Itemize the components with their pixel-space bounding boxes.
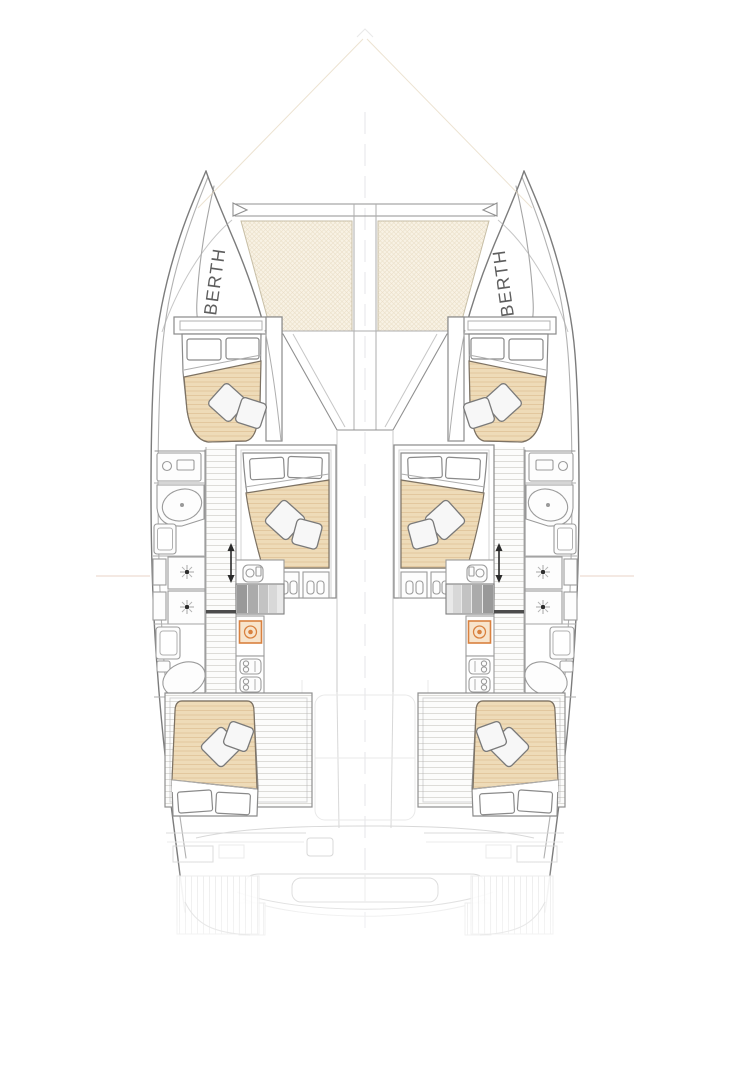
port-berth-label: BERTH <box>200 246 229 316</box>
bridle-line <box>367 39 532 208</box>
deck-plan-page: BERTH BERTH <box>0 0 730 1080</box>
stern-fadeout <box>0 858 730 1080</box>
bridle-apex-mark <box>357 29 373 37</box>
deck-plan-canvas: BERTH BERTH <box>0 0 730 1080</box>
starboard-berth-label: BERTH <box>489 248 518 318</box>
bridle-line <box>198 39 363 208</box>
